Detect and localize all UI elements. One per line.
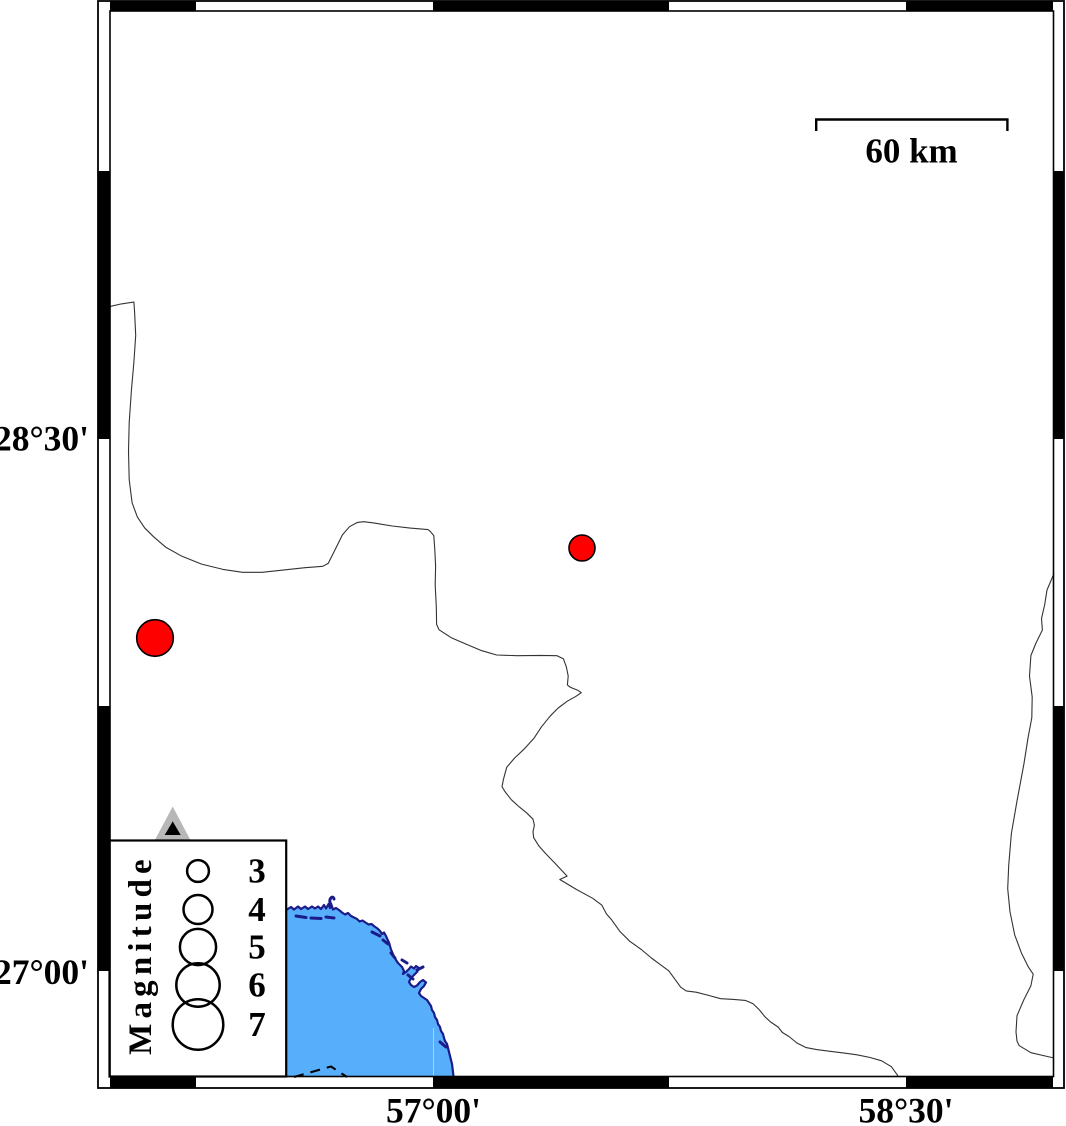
svg-text:28°30': 28°30' [0,419,89,459]
svg-text:4: 4 [248,890,266,929]
svg-text:3: 3 [248,852,266,891]
svg-text:5: 5 [248,928,266,967]
svg-text:7: 7 [248,1005,266,1044]
svg-text:58°30': 58°30' [858,1091,953,1126]
svg-text:27°00': 27°00' [0,952,89,992]
svg-text:60 km: 60 km [865,132,957,171]
svg-text:Magnitude: Magnitude [123,854,159,1055]
svg-text:6: 6 [248,966,266,1005]
svg-text:57°00': 57°00' [386,1091,481,1126]
